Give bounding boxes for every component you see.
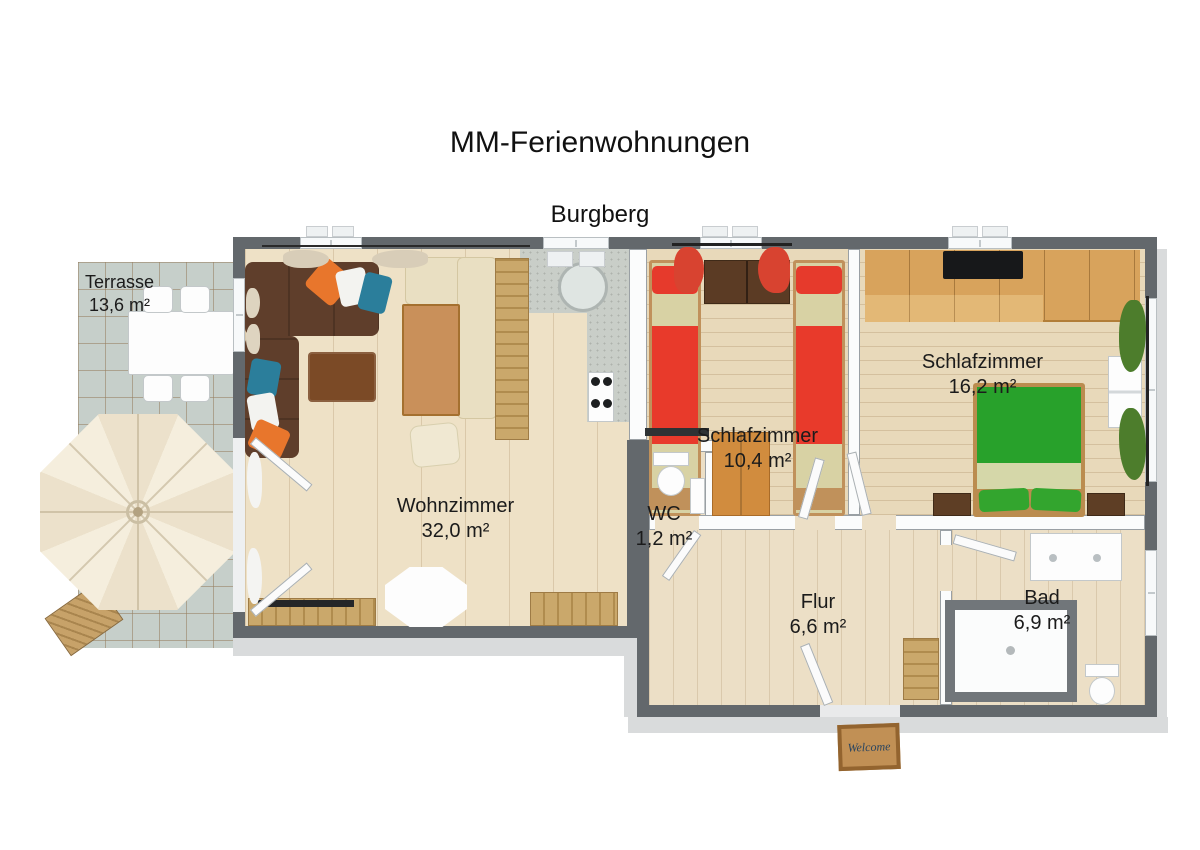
curtain-beige bbox=[246, 324, 260, 354]
doorway-bathroom bbox=[940, 545, 952, 591]
shower-drain bbox=[1006, 646, 1015, 655]
wall-living-bedroom-small bbox=[629, 249, 647, 440]
terrace-chair bbox=[180, 375, 210, 402]
doorway-terrace bbox=[233, 438, 245, 612]
wall-exterior-living-bottom bbox=[233, 626, 649, 638]
wardrobe-shelf bbox=[865, 295, 1043, 322]
curtain-rod bbox=[672, 243, 792, 246]
pillow-green bbox=[1030, 488, 1081, 513]
kitchen-sink bbox=[558, 262, 608, 312]
kitchen-window-pane bbox=[547, 251, 573, 267]
floor-plan-canvas: MM-Ferienwohnungen Burgberg bbox=[0, 0, 1200, 850]
curtain-rod bbox=[1146, 296, 1149, 486]
welcome-doormat: Welcome bbox=[837, 723, 901, 771]
window-kitchen-top bbox=[543, 237, 609, 249]
stove-burner bbox=[603, 377, 612, 386]
vanity-basin bbox=[1049, 554, 1057, 562]
window-living-left bbox=[233, 278, 245, 352]
sofa-pillow-teal bbox=[246, 358, 282, 399]
label-wc: WC 1,2 m² bbox=[618, 502, 710, 552]
double-bed bbox=[973, 383, 1085, 517]
window-sill bbox=[732, 226, 758, 237]
label-schlafzimmer-gross: Schlafzimmer 16,2 m² bbox=[905, 350, 1060, 400]
curtain-red bbox=[758, 247, 790, 293]
exterior-apron bbox=[624, 638, 637, 717]
window-sill bbox=[332, 226, 354, 237]
umbrella-hub-center bbox=[133, 507, 143, 517]
pillow-band bbox=[977, 463, 1081, 489]
stove-burner bbox=[603, 399, 612, 408]
dining-chair bbox=[409, 422, 461, 469]
hallway-cabinet bbox=[903, 638, 939, 700]
vanity-basin bbox=[1093, 554, 1101, 562]
window-bedroom-large-top bbox=[948, 237, 1012, 249]
kitchen-window-pane bbox=[579, 251, 605, 267]
dining-bench-right bbox=[457, 257, 497, 419]
label-bad: Bad 6,9 m² bbox=[982, 586, 1102, 636]
label-terrasse: Terrasse 13,6 m² bbox=[62, 271, 177, 316]
exterior-apron bbox=[233, 638, 643, 656]
window-sill bbox=[952, 226, 978, 237]
page-title: MM-Ferienwohnungen bbox=[0, 126, 1200, 160]
window-sill bbox=[702, 226, 728, 237]
toilet-bowl bbox=[1089, 677, 1115, 705]
nightstand bbox=[1087, 493, 1125, 516]
curtain-beige bbox=[283, 250, 329, 268]
window-sill bbox=[306, 226, 328, 237]
doorway-bedroom-large bbox=[862, 515, 896, 530]
wall-bedrooms-bottom bbox=[649, 515, 1145, 530]
tv-bedroom bbox=[943, 251, 1023, 279]
wall-hall-left bbox=[637, 638, 649, 705]
pillow-red bbox=[796, 266, 842, 294]
window-living-top bbox=[300, 237, 362, 249]
doorway-entrance bbox=[820, 705, 900, 717]
page-subtitle: Burgberg bbox=[0, 201, 1200, 229]
terrace-table bbox=[128, 311, 234, 375]
pillow-green bbox=[978, 488, 1029, 513]
terrace-chair bbox=[180, 286, 210, 313]
doormat-text: Welcome bbox=[847, 739, 890, 755]
curtain-green bbox=[1119, 408, 1146, 480]
stove-burner bbox=[591, 399, 600, 408]
bathroom-vanity bbox=[1030, 533, 1122, 581]
curtain-rod bbox=[262, 245, 530, 247]
nightstand bbox=[933, 493, 971, 516]
exterior-apron bbox=[1157, 249, 1167, 717]
label-wohnzimmer: Wohnzimmer 32,0 m² bbox=[378, 494, 533, 544]
curtain-beige bbox=[372, 250, 428, 268]
label-schlafzimmer-klein: Schlafzimmer 10,4 m² bbox=[680, 424, 835, 474]
toilet-tank bbox=[1085, 664, 1119, 677]
coffee-table bbox=[308, 352, 376, 402]
label-flur: Flur 6,6 m² bbox=[758, 590, 878, 640]
sideboard bbox=[495, 258, 529, 440]
window-bathroom-right bbox=[1145, 550, 1157, 636]
window-sill bbox=[982, 226, 1008, 237]
curtain-white bbox=[247, 452, 262, 508]
bench-lowboard bbox=[530, 592, 618, 626]
terrace-chair bbox=[143, 375, 173, 402]
stove-burner bbox=[591, 377, 600, 386]
dining-table bbox=[402, 304, 460, 416]
